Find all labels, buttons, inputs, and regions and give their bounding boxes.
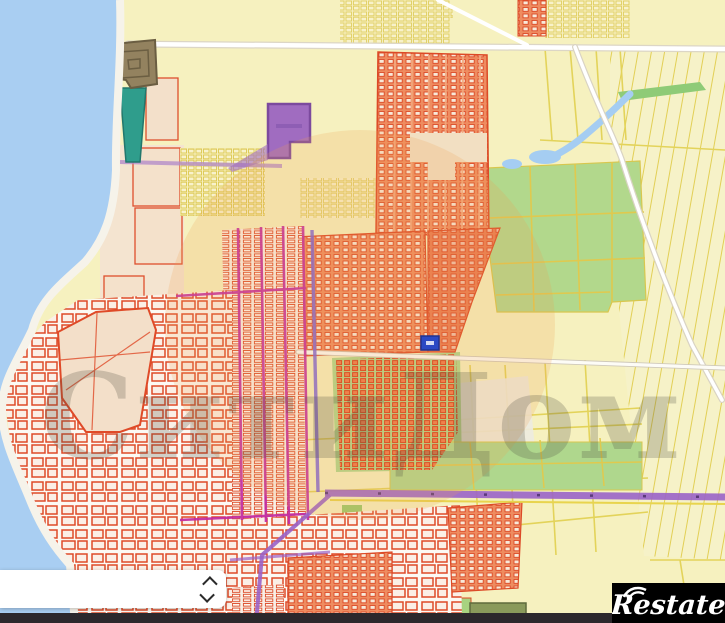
map-canvas[interactable]: СитиДом [0,0,725,623]
collapsed-list-panel[interactable] [0,570,226,608]
selected-parcel-marker[interactable] [421,336,439,350]
brand-logo-text: Restate [612,589,725,623]
expander-control[interactable] [203,577,214,602]
map-viewport[interactable]: СитиДом Restate [0,0,725,623]
map-watermark: СитиДом [40,347,682,486]
chevron-down-icon [199,587,215,603]
map-edge-bar [0,613,648,623]
brand-logo-plate: Restate [612,583,725,623]
